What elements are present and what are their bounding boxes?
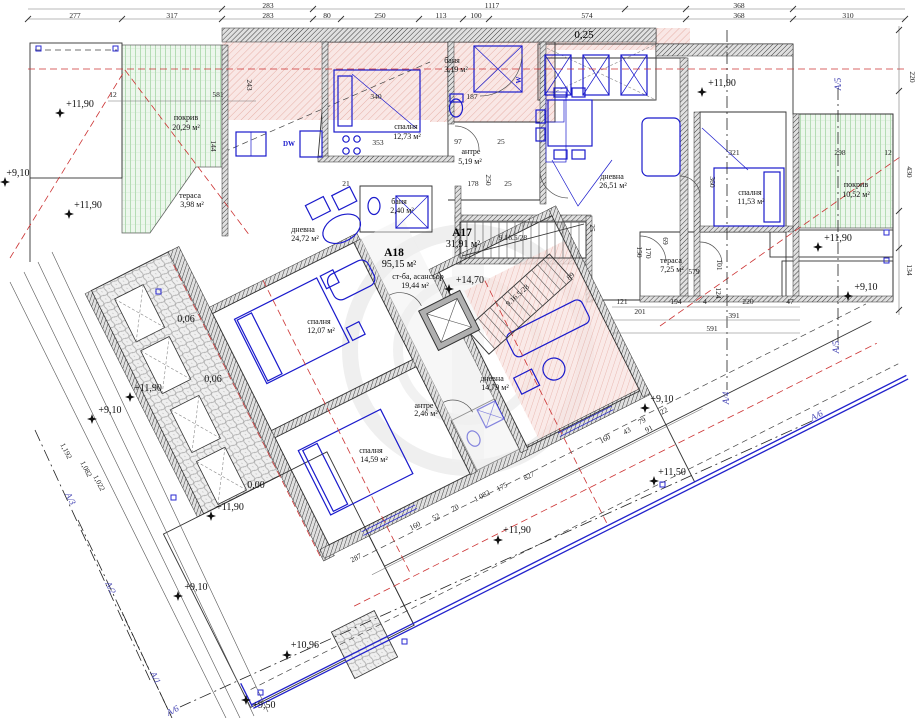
label-elev: +11,90 xyxy=(824,233,852,244)
label-room: 10,52 м² xyxy=(842,190,870,199)
label-dim: 287 xyxy=(349,551,363,564)
label-dim: 1,082 xyxy=(78,459,94,478)
elevation-marker xyxy=(64,209,74,219)
label-dim: 591 xyxy=(706,324,718,333)
label-dim: 368 xyxy=(733,11,745,20)
label-elev: 0,00 xyxy=(247,480,265,491)
label-dim: 170 xyxy=(644,247,653,259)
label-dim: 194 xyxy=(670,297,682,306)
left-roof-block xyxy=(30,43,122,262)
label-elev: +9,10 xyxy=(854,282,877,293)
label-room: баня xyxy=(444,56,460,65)
label-room: 14,79 м² xyxy=(481,383,509,392)
elevation-marker xyxy=(697,87,707,97)
label-room: спалня xyxy=(738,188,762,197)
elevation-marker xyxy=(87,414,97,424)
label-dim: 21 xyxy=(342,179,350,188)
label-dim: 25 xyxy=(588,224,597,232)
label-dim: 581 xyxy=(212,90,224,99)
label-room: дневна xyxy=(480,374,504,383)
label-room: 11,53 м² xyxy=(737,197,765,206)
floor-plan-page: 2831117368277317283802501131005743683100… xyxy=(0,0,916,718)
label-room: спалня xyxy=(307,317,331,326)
label-dim: 160 xyxy=(408,519,422,532)
label-axis: А/2 xyxy=(103,579,118,596)
label-dim: 25 xyxy=(504,179,512,188)
label-elev: +11,90 xyxy=(708,78,736,89)
label-room: 2,40 м² xyxy=(390,206,414,215)
label-dim: 430 xyxy=(905,166,914,178)
label-elev: 0,06 xyxy=(204,374,222,385)
label-elev: +9,10 xyxy=(184,582,207,593)
label-dim: 12 xyxy=(109,90,117,99)
label-elev: +9,10 xyxy=(6,168,29,179)
green-roof-right xyxy=(798,114,893,228)
label-dim: 579 xyxy=(688,267,700,276)
label-room: тераса xyxy=(660,256,682,265)
label-room: 5,19 м² xyxy=(458,157,482,166)
label-dim: 1117 xyxy=(485,1,500,10)
label-dim: 22 xyxy=(658,405,669,417)
label-dim: 25 xyxy=(497,137,505,146)
label-dim: 12 xyxy=(884,148,892,157)
label-dim: 1,022 xyxy=(91,473,107,492)
elevation-marker xyxy=(55,108,65,118)
label-room: баня xyxy=(391,197,407,206)
label-dim: 277 xyxy=(69,11,81,20)
label-dim: 134 xyxy=(905,264,914,276)
label-apt: A17 xyxy=(452,227,472,239)
label-dim: 101 xyxy=(715,259,724,271)
label-dim: 1 082 xyxy=(472,488,491,504)
elevation-marker xyxy=(640,403,650,413)
label-elev: +11,90 xyxy=(216,502,244,513)
label-axis: А/5 xyxy=(833,77,843,91)
label-axis: А/5 xyxy=(831,340,841,354)
label-apt2: 31,91 м² xyxy=(446,239,480,250)
label-room: 24,72 м² xyxy=(291,234,319,243)
label-dim: 360 xyxy=(708,176,717,188)
elevation-marker xyxy=(173,591,183,601)
label-room: 12,73 м² xyxy=(393,132,421,141)
label-room: покрив xyxy=(844,180,868,189)
label-room: дневна xyxy=(291,225,315,234)
label-elev: +9,10 xyxy=(98,405,121,416)
label-room: спалня xyxy=(359,446,383,455)
label-axis: А/6 xyxy=(164,703,181,718)
label-dim: 1,192 xyxy=(58,441,74,460)
label-dim: 121 xyxy=(616,297,628,306)
label-elev: +11,90 xyxy=(66,99,94,110)
elevation-marker xyxy=(241,695,251,705)
label-room: спалня xyxy=(394,122,418,131)
label-room: 12,07 м² xyxy=(307,326,335,335)
label-elev: +11,90 xyxy=(74,200,102,211)
label-dim: 47 xyxy=(786,297,794,306)
label-dim: 43 xyxy=(621,425,632,437)
label-dim: 353 xyxy=(372,138,384,147)
label-dim: 9.16.5/28 xyxy=(499,233,528,242)
label-dim: 250 xyxy=(374,11,386,20)
label-dim: 391 xyxy=(728,311,740,320)
label-room: тераса xyxy=(179,191,201,200)
floor-plan-canvas: 2831117368277317283802501131005743683100… xyxy=(0,0,916,718)
label-dim: 220 xyxy=(742,297,754,306)
label-elev: 0,06 xyxy=(177,314,195,325)
label-dim: 368 xyxy=(733,1,745,10)
label-apt2: 95,15 м² xyxy=(382,259,416,270)
label-dim: 91 xyxy=(643,423,654,435)
label-elev: +10,96 xyxy=(291,640,319,651)
label-dim: 310 xyxy=(842,11,854,20)
label-elev: +11,50 xyxy=(658,467,686,478)
label-dim: 144 xyxy=(209,140,218,152)
label-dim: 317 xyxy=(166,11,178,20)
label-dim: 283 xyxy=(262,11,274,20)
label-dim: 340 xyxy=(370,92,382,101)
label-room: 3,98 м² xyxy=(180,200,204,209)
label-room: 19,44 м² xyxy=(401,281,429,290)
label-room: ст-ба, асансьор xyxy=(392,272,444,281)
label-room: дневна xyxy=(600,172,624,181)
label-dim: 69 xyxy=(661,237,670,245)
label-axis: А/1 xyxy=(148,669,163,686)
label-dim: 250 xyxy=(484,174,493,186)
label-elev: +11,90 xyxy=(503,525,531,536)
label-dim: 70 xyxy=(449,502,460,514)
label-dim: 321 xyxy=(728,148,740,157)
label-room: покрив xyxy=(174,113,198,122)
elevation-marker xyxy=(282,650,292,660)
label-dim: 201 xyxy=(634,307,646,316)
label-axis: А/3 xyxy=(63,490,78,507)
elevation-marker xyxy=(493,535,503,545)
label-dim: 178 xyxy=(467,179,479,188)
label-blue: DW xyxy=(283,140,295,148)
label-dim: 283 xyxy=(262,1,274,10)
label-dim: 574 xyxy=(581,11,593,20)
label-apt: A18 xyxy=(384,247,404,259)
label-dim: 220 xyxy=(908,71,916,83)
label-room: антре xyxy=(462,147,481,156)
label-elev: +14,70 xyxy=(456,275,484,286)
label-elev: +11,90 xyxy=(134,383,162,394)
label-room: 26,51 м² xyxy=(599,181,627,190)
label-blue: W xyxy=(515,77,523,84)
label-axis: А/6 xyxy=(808,408,825,423)
label-room: 3,19 м² xyxy=(444,65,468,74)
label-dim: 187 xyxy=(466,92,478,101)
label-dim: 124 xyxy=(714,287,723,299)
label-dim: 52 xyxy=(430,511,441,523)
label-axis: А/4 xyxy=(721,391,731,405)
label-dim: 175 xyxy=(495,480,509,493)
label-elev: +9,10 xyxy=(650,394,673,405)
label-dim: 4 xyxy=(703,297,707,306)
label-dim: 97 xyxy=(454,137,462,146)
label-room: 2,46 м² xyxy=(414,409,438,418)
label-room: 14,59 м² xyxy=(360,455,388,464)
label-dim: 160 xyxy=(598,432,612,445)
label-dim: 298 xyxy=(834,148,846,157)
label-room: 20,29 м² xyxy=(172,123,200,132)
green-roof-left xyxy=(122,45,222,233)
label-elev: +9,50 xyxy=(252,700,275,711)
label-dim: 80 xyxy=(323,11,331,20)
label-dim: 150 xyxy=(635,246,644,258)
label-note: 0,25 xyxy=(574,29,594,41)
label-dim: 100 xyxy=(470,11,482,20)
label-dim: 243 xyxy=(245,79,254,91)
label-dim: 113 xyxy=(436,11,447,20)
label-room: 7,25 м² xyxy=(660,265,684,274)
